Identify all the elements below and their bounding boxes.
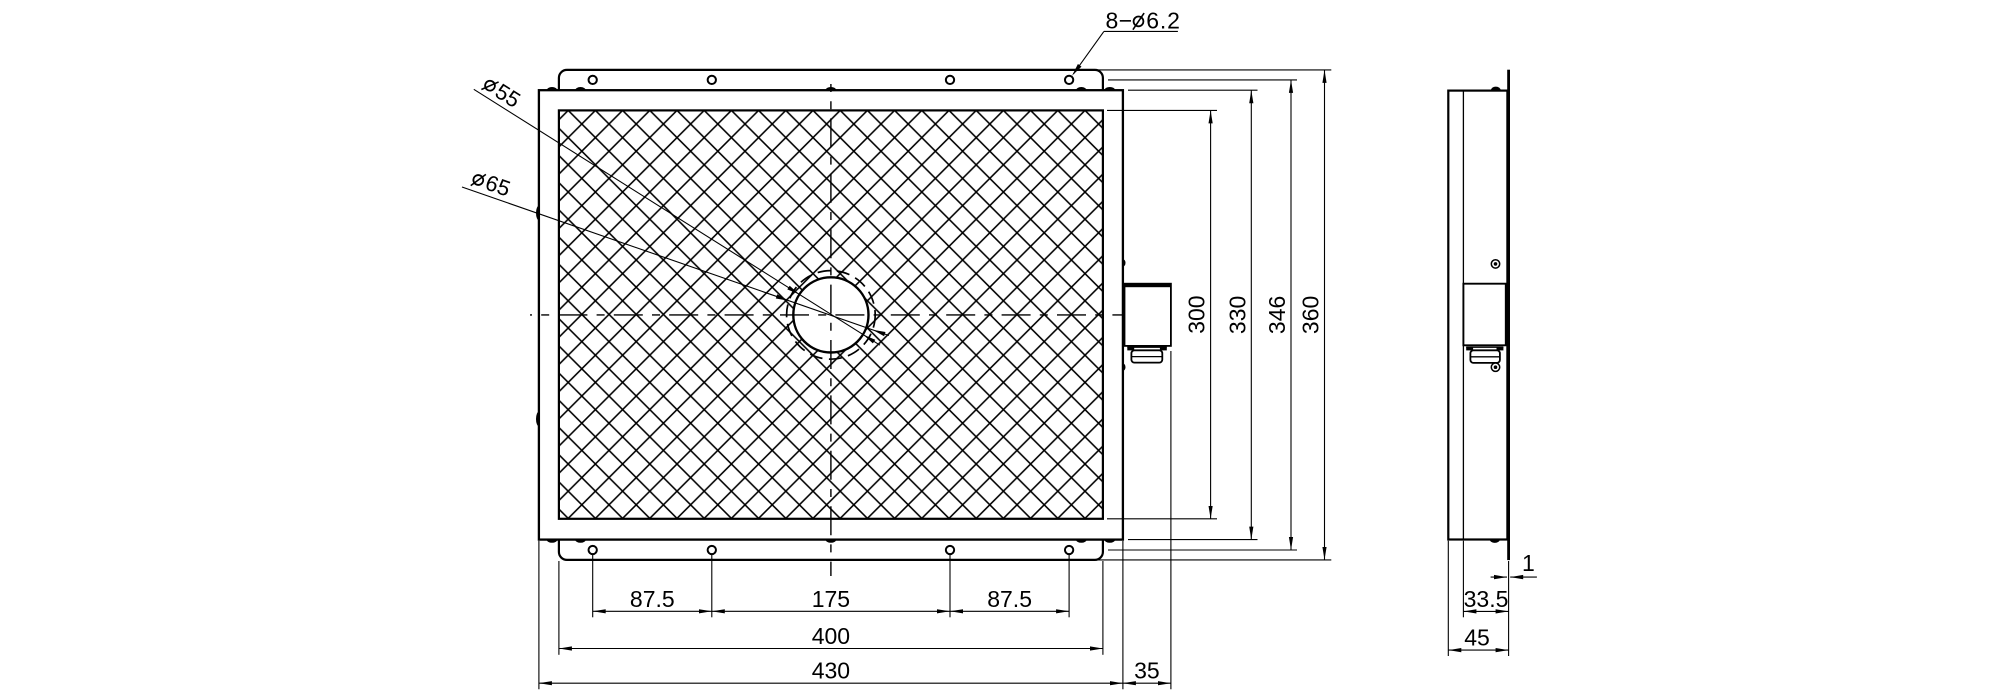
svg-text:1: 1 <box>1522 550 1535 576</box>
svg-text:65: 65 <box>482 170 513 202</box>
svg-text:330: 330 <box>1224 296 1250 334</box>
svg-text:400: 400 <box>812 623 850 649</box>
svg-text:300: 300 <box>1184 295 1210 333</box>
svg-text:87.5: 87.5 <box>630 586 675 612</box>
svg-text:8−: 8− <box>1106 7 1133 33</box>
svg-text:35: 35 <box>1134 658 1160 684</box>
svg-text:430: 430 <box>812 658 850 684</box>
svg-text:6.2: 6.2 <box>1146 7 1180 33</box>
svg-text:175: 175 <box>812 586 850 612</box>
svg-text:346: 346 <box>1264 296 1290 334</box>
svg-text:33.5: 33.5 <box>1464 586 1509 612</box>
svg-text:360: 360 <box>1298 296 1324 334</box>
svg-text:45: 45 <box>1464 624 1490 650</box>
svg-text:87.5: 87.5 <box>987 586 1032 612</box>
